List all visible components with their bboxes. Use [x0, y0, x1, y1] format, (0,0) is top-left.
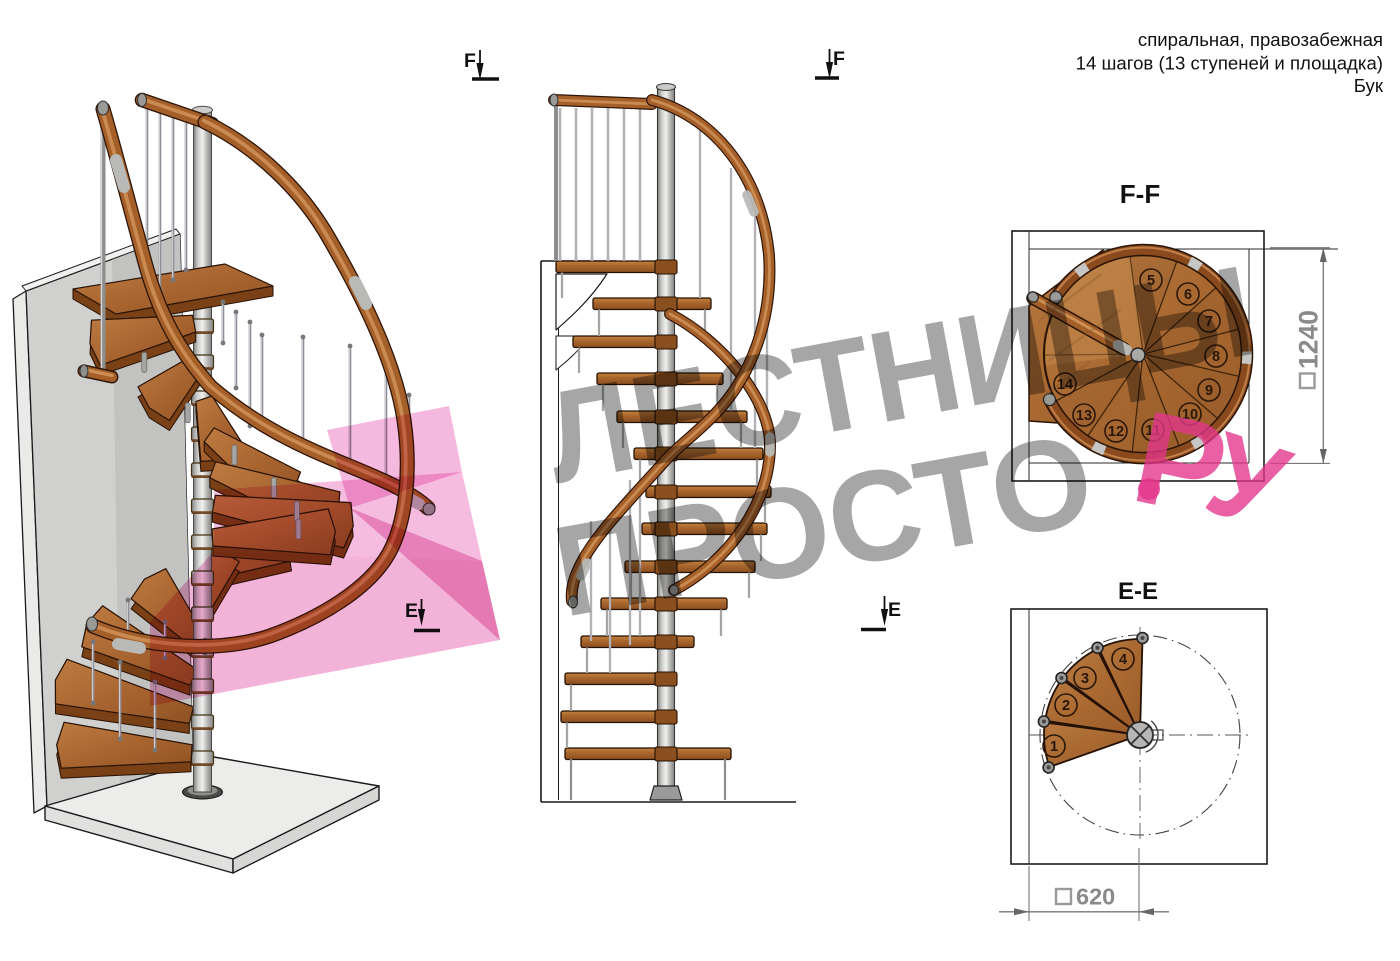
svg-text:Бук: Бук	[1354, 75, 1384, 96]
svg-text:12: 12	[1108, 424, 1124, 440]
svg-text:F: F	[833, 48, 845, 70]
svg-text:2: 2	[1062, 698, 1070, 714]
svg-text:14 шагов (13 ступеней и площад: 14 шагов (13 ступеней и площадка)	[1076, 53, 1383, 74]
svg-text:1240: 1240	[1294, 310, 1324, 369]
svg-text:1: 1	[1050, 739, 1058, 755]
svg-text:спиральная, правозабежная: спиральная, правозабежная	[1138, 29, 1383, 50]
svg-text:F: F	[464, 50, 476, 72]
svg-text:4: 4	[1119, 652, 1127, 668]
svg-text:3: 3	[1081, 671, 1089, 687]
svg-text:E: E	[888, 599, 901, 621]
svg-text:E-E: E-E	[1118, 578, 1158, 605]
svg-text:F-F: F-F	[1120, 179, 1160, 209]
svg-text:620: 620	[1076, 884, 1115, 910]
